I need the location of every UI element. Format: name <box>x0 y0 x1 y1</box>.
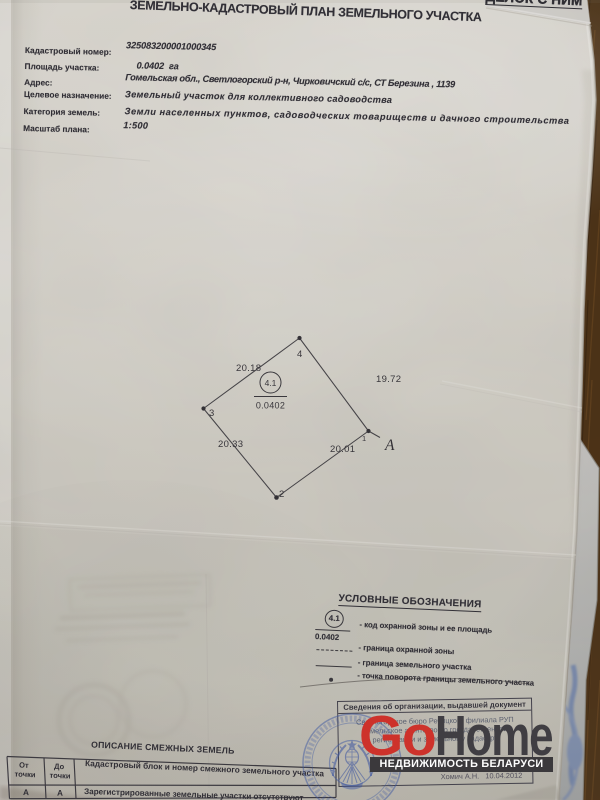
svg-text:точки: точки <box>14 770 36 780</box>
svg-text:До: До <box>54 762 65 771</box>
svg-text:точки: точки <box>49 771 71 781</box>
svg-text:А: А <box>23 788 29 797</box>
svg-text:Кадастровый блок и номер смежн: Кадастровый блок и номер смежного земель… <box>85 758 325 778</box>
svg-text:От: От <box>19 761 29 770</box>
svg-text:ОПИСАНИЕ СМЕЖНЫХ ЗЕМЕЛЬ: ОПИСАНИЕ СМЕЖНЫХ ЗЕМЕЛЬ <box>91 740 235 756</box>
svg-text:А: А <box>57 789 63 798</box>
